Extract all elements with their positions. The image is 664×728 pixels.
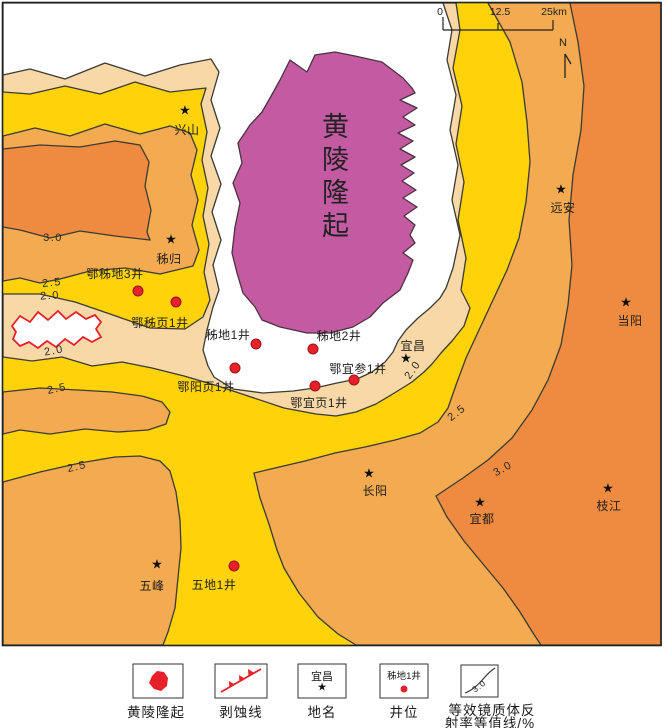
well-label-zidi2: 秭地2井 bbox=[317, 327, 362, 344]
well-dot-zidi2 bbox=[308, 344, 319, 355]
legend-label-well: 井位 bbox=[390, 701, 419, 721]
well-dot-wudi1 bbox=[229, 561, 240, 572]
well-label-zidi1: 秭地1井 bbox=[206, 326, 251, 343]
contour-label-2.5-west: 2.5 bbox=[42, 276, 63, 290]
town-star-changyang: ★ bbox=[363, 467, 375, 480]
town-label-wufeng: 五峰 bbox=[139, 577, 164, 594]
well-label-eyican1: 鄂宜参1井 bbox=[329, 360, 386, 377]
town-star-dangyang: ★ bbox=[620, 296, 632, 309]
town-label-yuanan: 远安 bbox=[550, 199, 575, 216]
town-label-yidu: 宜都 bbox=[469, 510, 494, 527]
town-star-yuanan: ★ bbox=[555, 183, 567, 196]
legend-label-erosion: 剥蚀线 bbox=[219, 701, 263, 721]
region-ro-2.5-southwest bbox=[3, 456, 181, 645]
town-label-dangyang: 当阳 bbox=[617, 312, 642, 329]
town-star-zhijiang: ★ bbox=[602, 482, 614, 495]
well-label-eyangye1: 鄂阳页1井 bbox=[177, 378, 234, 395]
scale-tick-12.5: 12.5 bbox=[490, 6, 510, 18]
well-dot-eyiye1 bbox=[310, 381, 321, 392]
legend-label-uplift: 黄陵隆起 bbox=[127, 701, 185, 721]
contour-label-2.0-west: 2.0 bbox=[40, 289, 61, 302]
well-label-wudi1: 五地1井 bbox=[192, 576, 237, 593]
town-star-zigui: ★ bbox=[165, 233, 177, 246]
well-dot-zidi1 bbox=[251, 339, 262, 350]
contour-label-3.0-west: 3.0 bbox=[43, 232, 63, 244]
scale-tick-25km: 25km bbox=[541, 6, 567, 18]
legend-well-sample: 秭地1井 bbox=[387, 668, 421, 682]
well-label-eyiye1: 鄂宜页1井 bbox=[290, 394, 347, 411]
uplift-title: 黄陵隆起 bbox=[316, 112, 349, 244]
town-label-zhijiang: 枝江 bbox=[596, 497, 621, 514]
town-star-xingshan: ★ bbox=[179, 104, 191, 117]
town-label-xingshan: 兴山 bbox=[174, 121, 199, 138]
well-label-eziye1: 鄂秭页1井 bbox=[131, 314, 188, 331]
well-dot-ezidi3 bbox=[133, 286, 144, 297]
well-dot-eyangye1 bbox=[230, 363, 241, 374]
town-label-zigui: 秭归 bbox=[156, 250, 181, 267]
geological-map-canvas: 黄陵隆起 ★ 兴山 ★ 秭归 ★ 远安 ★ 当阳 宜昌 ★ ★ 长阳 ★ 宜都 … bbox=[0, 0, 664, 728]
legend-label-contour-line2: 射率等值线/% bbox=[445, 712, 535, 728]
town-label-changyang: 长阳 bbox=[362, 482, 387, 499]
scale-tick-0: 0 bbox=[437, 6, 443, 18]
town-star-wufeng: ★ bbox=[151, 558, 163, 571]
well-symbol-icon bbox=[401, 686, 408, 693]
town-star-yidu: ★ bbox=[474, 496, 486, 509]
region-ro-above-3.0-west-core bbox=[3, 141, 151, 240]
well-dot-eziye1 bbox=[171, 297, 182, 308]
north-label: N bbox=[559, 37, 567, 49]
legend-place-star-icon: ★ bbox=[317, 683, 327, 694]
legend-label-place: 地名 bbox=[308, 701, 337, 721]
well-label-ezidi3: 鄂秭地3井 bbox=[86, 265, 143, 282]
